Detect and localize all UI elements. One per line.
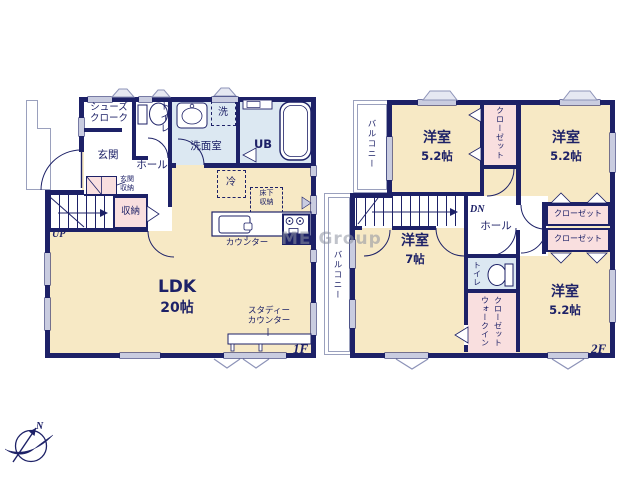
wall (350, 193, 355, 358)
label-underfloor: 床下収納 (250, 189, 283, 207)
label-washroom: 洗面室 (178, 140, 234, 152)
window (311, 196, 316, 214)
label-room-se: 洋室5.2帖 (534, 283, 596, 319)
label-hall-2f: ホール (474, 220, 518, 232)
label-bath: UB (248, 138, 278, 152)
floor-plan: N シューズクローク トイレ 洗 洗面室 UB 玄関 ホール 玄関収納 収納 U… (0, 0, 640, 480)
label-study-counter: スタディーカウンター (238, 306, 300, 326)
wall (392, 226, 436, 230)
wic-door-gap (464, 325, 468, 345)
window (610, 133, 615, 172)
label-kitchen-counter: カウンター (216, 238, 278, 248)
label-floor-2f: 2F (591, 341, 606, 356)
label-floor-1f: 1F (293, 341, 308, 356)
label-entrance: 玄関 (84, 149, 132, 161)
label-toilet-1f: トイレ (158, 101, 169, 134)
label-balcony-left: バルコニー (332, 250, 342, 300)
window-chevron-marks (214, 359, 584, 369)
label-room-sw: 洋室7帖 (384, 232, 446, 268)
stairs-1f (50, 195, 114, 228)
wall (464, 254, 520, 258)
label-dn: DN (470, 204, 484, 216)
window (311, 250, 316, 262)
label-closet-east2: クローゼット (546, 234, 610, 243)
window (548, 353, 588, 358)
porch-strip (26, 100, 38, 129)
room-wic (468, 293, 516, 353)
window (120, 353, 160, 358)
wall (516, 103, 521, 205)
label-storage: 収納 (113, 206, 148, 217)
label-wic-line2: クローゼット (493, 296, 502, 347)
label-room-ne: 洋室5.2帖 (535, 129, 597, 165)
window (350, 300, 355, 328)
window (560, 100, 600, 105)
window (45, 253, 50, 285)
window (418, 100, 456, 105)
wall (387, 192, 484, 196)
compass-icon: N (5, 421, 53, 462)
label-wic-line1: ウォークイン (480, 296, 489, 347)
label-room-nw: 洋室5.2帖 (406, 129, 468, 165)
label-closet-east1: クローゼット (546, 209, 610, 218)
label-balcony-top: バルコニー (366, 119, 376, 169)
entrance-storage-box (86, 176, 117, 195)
label-washer: 洗 (218, 107, 228, 119)
label-shoes-cloak: シューズクローク (84, 102, 134, 124)
watermark: ME Group (281, 229, 382, 249)
window (212, 97, 238, 102)
room-bath (240, 100, 311, 165)
wall (350, 193, 392, 198)
window (610, 270, 615, 322)
window (385, 353, 428, 358)
wall (464, 289, 520, 293)
wall (204, 163, 316, 168)
label-ldk: LDK20帖 (127, 277, 227, 318)
label-entrance-storage: 玄関収納 (120, 175, 134, 193)
wall (236, 97, 240, 165)
label-toilet-2f: トイレ (472, 261, 481, 287)
window (311, 166, 316, 176)
wall (480, 165, 520, 169)
stairs-2f (356, 196, 464, 226)
label-hall-1f: ホール (132, 159, 172, 171)
window (45, 298, 50, 330)
window (224, 353, 286, 358)
compass-north-label: N (35, 421, 44, 432)
window (139, 97, 152, 102)
porch (26, 128, 51, 190)
wall (480, 103, 484, 196)
label-up: UP (52, 229, 65, 241)
window (387, 137, 392, 180)
wall (45, 190, 84, 195)
label-fridge: 冷 (226, 177, 236, 189)
window (311, 303, 316, 335)
wall (79, 128, 122, 132)
label-closet-mid: クローゼット (495, 106, 504, 160)
